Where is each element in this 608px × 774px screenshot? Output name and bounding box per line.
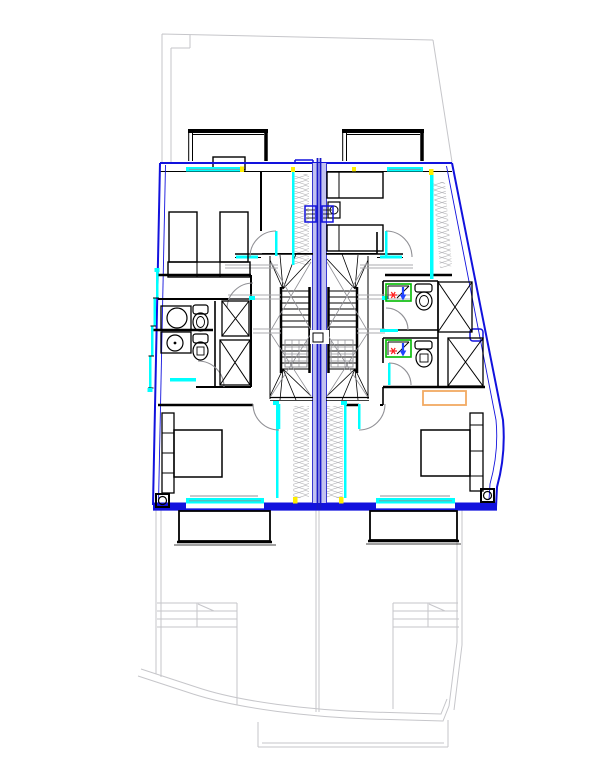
toilet: [193, 334, 208, 360]
toilet: [415, 341, 432, 367]
door-leaf: [170, 378, 196, 382]
wall-cap: [236, 256, 258, 259]
hot-water-symbol: [390, 348, 398, 354]
bed-double: [162, 413, 222, 493]
exterior-steps-right: [393, 603, 459, 627]
door-leaf: [388, 363, 391, 385]
door-arc-bath-right-lower: [389, 363, 411, 385]
hot-water-symbol: [390, 292, 398, 298]
shaft-box: [438, 282, 472, 332]
window-right-slant: [430, 172, 434, 279]
shaft-box: [220, 340, 250, 385]
site-boundary: [162, 34, 452, 163]
wash-basin: [161, 332, 191, 353]
door-leaf: [358, 404, 361, 429]
wall-cap: [380, 256, 402, 259]
bed-double: [421, 413, 483, 491]
glazing-corridor-lower-right: [344, 405, 347, 498]
wall-cap: [341, 401, 347, 405]
staircase-right: [326, 254, 377, 401]
door-leaf: [275, 231, 278, 256]
door-arc-bedroom-bottom-left: [253, 404, 279, 430]
balcony-right: [366, 511, 461, 544]
stair-landing-gap: [310, 330, 329, 344]
door-arc-bedroom-bottom-right: [359, 404, 385, 430]
door-leaf: [278, 404, 281, 429]
bed-single: [168, 212, 250, 277]
toilet: [415, 284, 432, 310]
shower-tray: [386, 340, 411, 357]
balcony-left: [174, 511, 276, 545]
toilet: [193, 305, 208, 331]
wardrobe: [423, 391, 466, 405]
wall-cap: [249, 296, 255, 300]
door-leaf: [385, 231, 388, 256]
wall-cap: [382, 296, 388, 300]
wash-basin: [161, 306, 191, 330]
wall-cap: [380, 329, 398, 332]
shaft-box: [222, 301, 249, 336]
shaft-box: [448, 338, 483, 386]
shower-tray: [386, 284, 411, 301]
glazing-corridor-upper: [292, 170, 295, 265]
ground-floor-outline: [138, 510, 462, 747]
door-arc-bath-right-upper: [386, 308, 408, 330]
floor-plan-canvas: Upper floor plan — semi-detached house w…: [0, 0, 608, 774]
exterior-steps-left: [157, 603, 237, 627]
bed-single: [327, 172, 383, 251]
roof-terrace-right: [342, 129, 424, 161]
door-arc-bedroom-top-right: [386, 231, 412, 257]
